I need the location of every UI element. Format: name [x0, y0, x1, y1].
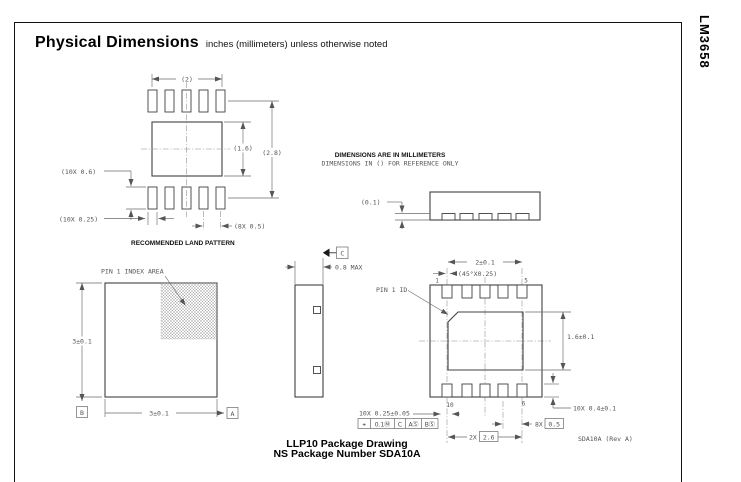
drawing-notes: DIMENSIONS ARE IN MILLIMETERS DIMENSIONS…	[322, 152, 459, 168]
side-view-dimensions: (0.1)	[361, 199, 430, 230]
dim-thickness: 0.8 MAX	[335, 264, 362, 272]
fcf-datum-c: C	[398, 421, 402, 428]
dim-span-qty: 2X	[469, 434, 477, 442]
datum-b-label: B	[80, 409, 84, 417]
datum-a-label: A	[231, 410, 235, 418]
note-reference: DIMENSIONS IN () FOR REFERENCE ONLY	[322, 160, 459, 168]
drawing-caption: LLP10 Package Drawing NS Package Number …	[237, 440, 457, 460]
dim-lead-width: 10X 0.25±0.05	[359, 410, 410, 418]
land-pattern-caption: RECOMMENDED LAND PATTERN	[131, 240, 235, 247]
dim-land-pitch: (8X 0.5)	[234, 223, 265, 231]
drawing-canvas: (2) (1.6) (2.8) (10X 0.6) (10X 0.25)	[0, 0, 741, 482]
pin-number-10: 10	[446, 402, 454, 409]
profile-dimensions: 0.8 MAX	[286, 258, 363, 284]
dim-chamfer: (45°X0.25)	[458, 270, 497, 278]
dim-land-width: (2)	[181, 76, 193, 84]
fcf-datum-a: AⓈ	[408, 420, 418, 428]
pin1-index-area	[161, 283, 217, 339]
fcf-position-symbol: ⌖	[363, 421, 367, 428]
datum-triangle-icon	[323, 249, 330, 258]
dim-land-pad-length: (10X 0.6)	[61, 168, 96, 176]
top-view: PIN 1 INDEX AREA 3±0.1 3±0.1 B A	[68, 268, 238, 419]
dim-pitch-value: 0.5	[548, 421, 560, 429]
dim-land-pad-width: (10X 0.25)	[59, 216, 98, 224]
dim-topview-height: 3±0.1	[72, 338, 92, 346]
dim-span-value: 2.6	[483, 434, 495, 442]
dim-pad-height: 1.6±0.1	[567, 333, 594, 341]
pin1-id-label: PIN 1 ID	[376, 286, 407, 294]
land-pattern-view: (2) (1.6) (2.8) (10X 0.6) (10X 0.25)	[59, 74, 286, 248]
package-rev-label: SDA10A (Rev A)	[578, 435, 633, 443]
datum-c-flag: C	[323, 247, 348, 259]
dim-land-overall-height: (2.8)	[262, 149, 282, 157]
dim-standoff: (0.1)	[361, 199, 381, 207]
fcf-datum-b: BⓈ	[425, 420, 435, 428]
side-view-leads	[442, 214, 529, 221]
pin-number-5: 5	[524, 278, 528, 285]
feature-control-frame: ⌖ 0.1Ⓜ C AⓈ BⓈ	[358, 419, 438, 429]
datasheet-page: Physical Dimensions inches (millimeters)…	[0, 0, 741, 482]
pin-number-1: 1	[435, 278, 439, 285]
dim-pitch-qty: 8X	[535, 421, 543, 429]
datum-c-label: C	[340, 250, 344, 258]
dim-lead-length: 10X 0.4±0.1	[573, 405, 616, 413]
note-units: DIMENSIONS ARE IN MILLIMETERS	[335, 152, 446, 159]
caption-line2: NS Package Number SDA10A	[237, 450, 457, 460]
profile-view: 0.8 MAX C	[286, 247, 363, 397]
pin1-index-label: PIN 1 INDEX AREA	[101, 268, 164, 276]
datum-a: A	[227, 408, 238, 419]
pin-number-6: 6	[522, 401, 526, 408]
dim-pad-width: 2±0.1	[475, 259, 495, 267]
dim-land-body-height: (1.6)	[233, 145, 253, 153]
dim-topview-width: 3±0.1	[149, 410, 169, 418]
fcf-tolerance: 0.1Ⓜ	[375, 420, 391, 428]
bottom-view: 2±0.1 (45°X0.25) PIN 1 ID 1.6±0.1 10X 0.…	[358, 257, 633, 443]
top-side-view: (0.1)	[361, 192, 540, 229]
datum-b: B	[77, 407, 88, 418]
